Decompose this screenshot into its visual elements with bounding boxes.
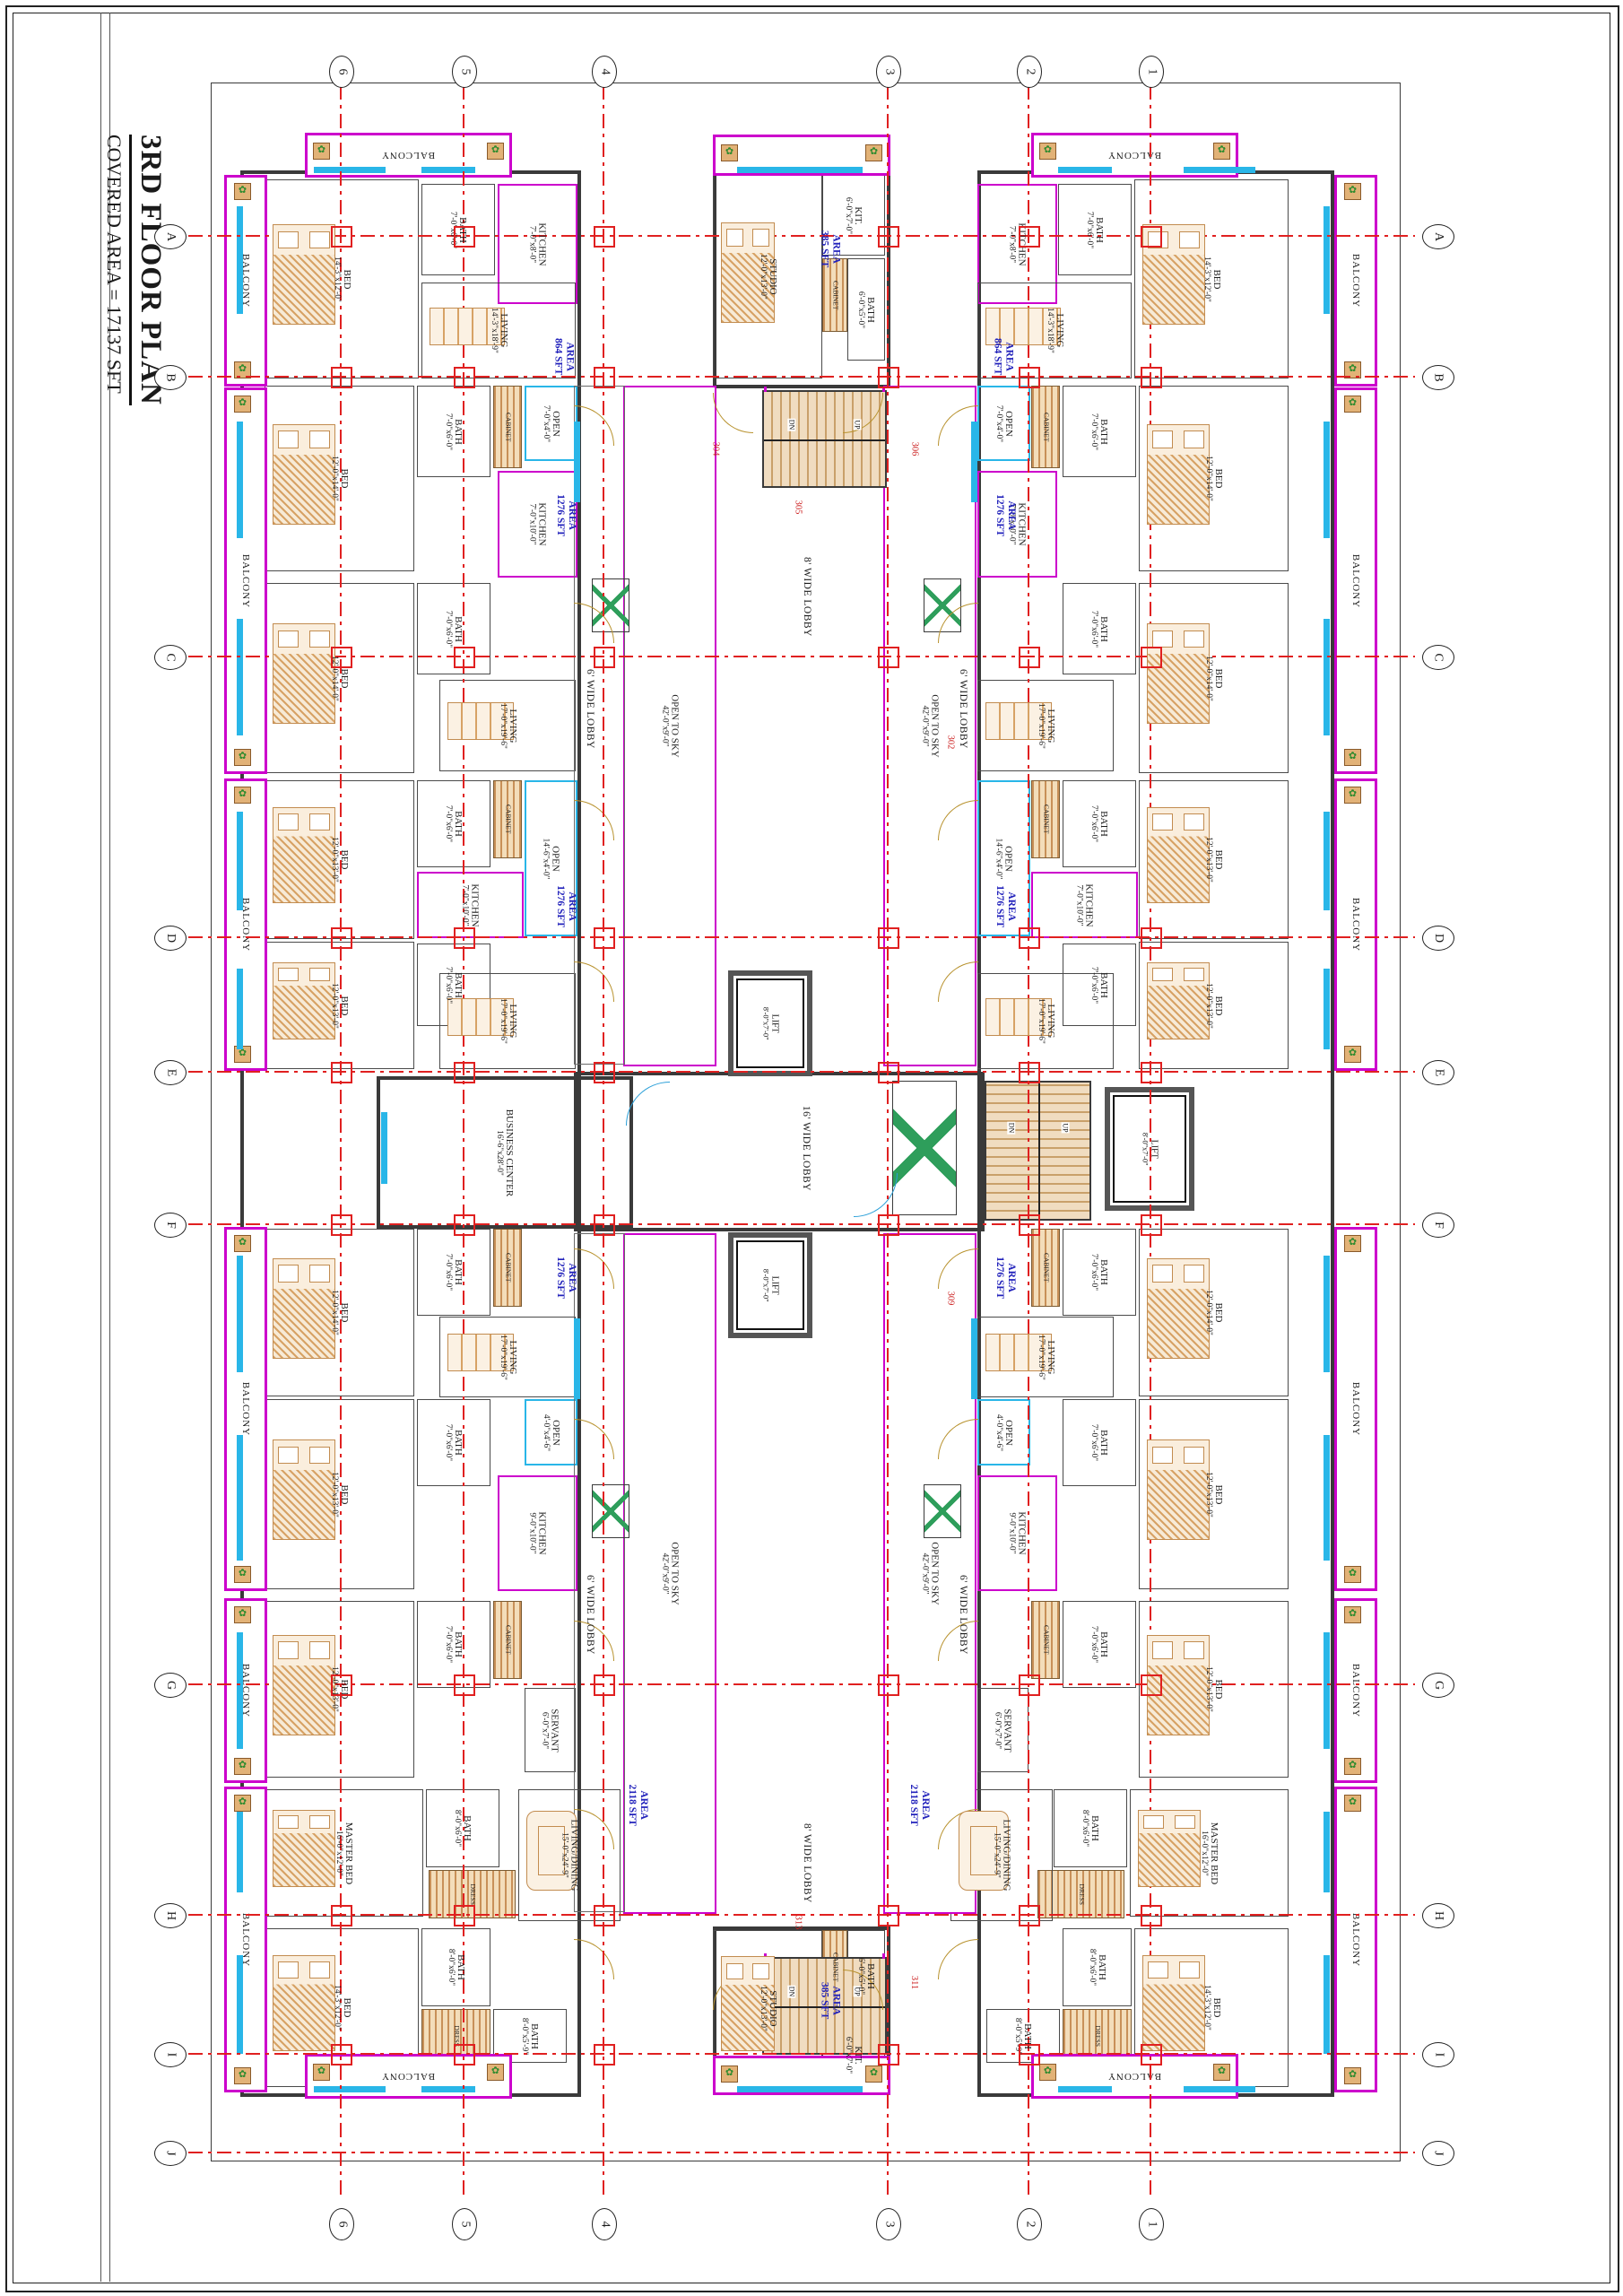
cabinet-room: CABINET — [493, 386, 522, 468]
bed-icon — [273, 224, 335, 325]
room-name: BED — [1213, 1472, 1224, 1518]
room-dims: 17'-0"x19'-6" — [498, 998, 508, 1044]
area-tag-label: AREA385 SFT — [819, 1982, 841, 2019]
lift-label: LIFT8'-0"x7'-0" — [761, 1007, 779, 1040]
room-dims: 12'-0"x13'-0" — [1203, 837, 1213, 883]
unit-number: 313 — [793, 1916, 803, 1930]
room-name: DRESS — [1093, 2025, 1100, 2046]
area-word: AREA — [566, 494, 577, 536]
room-dims: 12'-0"x13'-0" — [329, 837, 339, 883]
balcony: BALCONY✿✿ — [1334, 1787, 1377, 2092]
room-dims: 12'-0"x14'-0" — [329, 656, 339, 701]
room-label: BATH7'-0"x6'-0" — [444, 966, 464, 1003]
room-name: BATH — [529, 2017, 540, 2054]
room-dims: 14'-3"x12'-0" — [332, 257, 342, 302]
room-label: DRESS8'-0"x5'-10" — [468, 1883, 475, 1904]
room-label: LIVING/DINING15'-0"x24'-9" — [560, 1819, 580, 1891]
studio-room: STUDIO12'-0"x13'-0" — [713, 175, 822, 378]
lift-label: LIFT8'-0"x7'-0" — [1141, 1133, 1159, 1166]
bath-room: BATH8'-0"x6'-0" — [426, 1789, 499, 1867]
bed-icon — [1147, 1258, 1210, 1359]
bed-icon — [1147, 1635, 1210, 1735]
room-name: LIVING — [507, 703, 517, 749]
room-label: CABINET — [831, 281, 838, 310]
bed-icon — [273, 1955, 335, 2051]
room-label: KITCHEN7'-0"x8'-0" — [527, 222, 548, 265]
stair-dn-label: DN — [1007, 1121, 1015, 1134]
room-name: CABINET — [504, 413, 511, 442]
balcony: BALCONY✿✿ — [1334, 1227, 1377, 1591]
balcony: BALCONY✿✿ — [224, 778, 267, 1071]
bed-room: BED14'-3"x12'-0" — [1134, 179, 1289, 378]
room-label: MASTER BED16'-0"x12'-0" — [334, 1822, 354, 1883]
room-label: KITCHEN7'-0"x10'-0" — [1074, 883, 1095, 926]
bed-room: BED12'-0"x14'-0" — [1139, 583, 1289, 773]
room-name: BATH — [1098, 1424, 1109, 1461]
room-name: CABINET — [831, 1952, 838, 1982]
bed-icon — [273, 1810, 335, 1887]
window-strip — [1184, 2086, 1255, 2092]
plant-pot-icon: ✿ — [234, 1235, 251, 1252]
room-name: BED — [1213, 656, 1224, 701]
room-label: DRESS8'-0"x5'-10" — [1077, 1883, 1084, 1904]
room-name: BED — [1211, 257, 1221, 302]
area-word: AREA — [830, 1982, 842, 2019]
bath-room: BATH7'-0"x6'-0" — [1063, 583, 1136, 674]
cabinet-room: CABINET — [493, 1229, 522, 1307]
room-label: BED12'-0"x13'-0" — [329, 1472, 350, 1518]
plant-pot-icon: ✿ — [1344, 1046, 1361, 1063]
master-bed-room: MASTER BED16'-0"x12'-0" — [265, 1789, 423, 1917]
cabinet-room: CABINET — [1031, 386, 1060, 468]
kitchen-room: KITCHEN9'-0"x10'-0" — [977, 1475, 1057, 1591]
area-value: 385 SFT — [819, 230, 830, 267]
room-dims: 17'-0"x19'-6" — [1036, 703, 1046, 749]
room-name: BATH — [1094, 211, 1105, 248]
room-label: 6' WIDE LOBBY — [957, 669, 968, 749]
room-name: LIVING — [507, 1335, 517, 1380]
room-dims: 17'-0"x19'-6" — [498, 1335, 508, 1380]
window-strip — [237, 1812, 243, 1892]
room-name: STUDIO — [767, 1986, 777, 2031]
area-tag: AREA2118 SFT — [898, 1794, 940, 1816]
room-dims: 7'-0"x6'-0" — [444, 805, 454, 842]
cabinet-room: CABINET — [1031, 1229, 1060, 1307]
room-dims: 17'-0"x19'-6" — [498, 703, 508, 749]
area-tag: AREA864 SFT — [985, 345, 1021, 368]
room-name: BED — [339, 456, 350, 501]
stair-divider — [1038, 1083, 1041, 1219]
room-label: BED14'-3"x12'-0" — [332, 1985, 352, 2031]
room-label: BED12'-0"x14'-0" — [1203, 1290, 1224, 1335]
room-dims: 7'-0"x8'-0" — [1007, 222, 1017, 265]
room-label: 6' WIDE LOBBY — [584, 1575, 595, 1655]
room-dims: 7'-0"x4'-0" — [994, 404, 1003, 441]
lift-name: LIFT — [769, 1007, 779, 1040]
room-label: CABINET — [831, 1952, 838, 1982]
room-dims: 7'-0"x6'-0" — [444, 1424, 454, 1461]
room-name: LIVING — [498, 308, 508, 353]
area-tag: AREA1276 SFT — [985, 895, 1027, 918]
room-label: BATH7'-0"x6'-0" — [444, 1626, 464, 1663]
room-dims: 12'-0"x14'-0" — [329, 1290, 339, 1335]
window-strip — [1324, 619, 1330, 735]
room-name: LIVING — [1054, 308, 1064, 353]
area-tag: AREA1276 SFT — [985, 1266, 1027, 1289]
bed-icon — [1147, 1439, 1210, 1540]
room-name: BED — [1213, 983, 1224, 1029]
bed-icon — [1138, 1810, 1201, 1887]
room-label: DRESS5'-9"x5'-9" — [452, 2025, 459, 2046]
window-strip — [237, 1955, 243, 2054]
room-dims: 6'-0"x5'-0" — [856, 291, 866, 327]
room-label: LIVING14'-3"x18'-9" — [489, 308, 509, 353]
room-name: CABINET — [1042, 1625, 1049, 1655]
room-name: OPEN — [1003, 838, 1014, 879]
area-tag: AREA2118 SFT — [617, 1794, 658, 1816]
area-word: AREA — [830, 230, 842, 267]
bath-room: BATH7'-0"x6'-0" — [1063, 1399, 1136, 1486]
area-word: AREA — [1005, 494, 1017, 536]
room-name: BED — [339, 837, 350, 883]
room-name: BED — [1213, 1666, 1224, 1712]
room-name: BED — [341, 1985, 352, 2031]
area-value: 1276 SFT — [994, 1257, 1006, 1299]
room-label: BATH7'-0"x6'-0" — [1089, 805, 1110, 842]
room-dims: 42'-0"x9'-0" — [660, 1542, 670, 1605]
balcony-label: BALCONY — [1350, 1382, 1361, 1436]
room-label: BATH7'-0"x6'-0" — [444, 1424, 464, 1461]
room-dims: 6'-0"x5'-0" — [856, 1957, 866, 1994]
area-value: 2118 SFT — [627, 1784, 638, 1825]
servant-room: SERVANT6'-0"x7'-0" — [525, 1688, 576, 1772]
room-dims: 6'-0"x7'-0" — [844, 196, 854, 233]
room-name: OPEN — [551, 838, 561, 879]
room-label: KITCHEN7'-0"x8'-0" — [1007, 222, 1028, 265]
16-wide-lobby-room: 16' WIDE LOBBY — [794, 1092, 818, 1204]
room-label: BED12'-0"x14'-0" — [1203, 656, 1224, 701]
balcony-label: BALCONY — [1350, 553, 1361, 607]
room-label: BATH8'-0"x6'-0" — [446, 1949, 466, 1986]
room-dims: 14'-3"x12'-0" — [1202, 1985, 1211, 2031]
room-label: BED12'-0"x13'-0" — [1203, 1472, 1224, 1518]
balcony-label: BALCONY — [1350, 1664, 1361, 1718]
plant-pot-icon: ✿ — [865, 144, 882, 161]
plant-pot-icon: ✿ — [865, 2066, 882, 2083]
room-dims: 42'-0"x9'-0" — [920, 1542, 930, 1605]
area-tag-label: AREA1276 SFT — [994, 494, 1017, 536]
room-name: OPEN TO SKY — [669, 694, 680, 758]
bed-room: BED12'-0"x14'-0" — [265, 583, 414, 773]
room-name: LIVING — [1045, 1335, 1055, 1380]
bed-icon — [273, 1258, 335, 1359]
bed-room: BED12'-0"x14'-0" — [1139, 386, 1289, 571]
room-name: KIT. — [853, 2036, 864, 2073]
area-tag: AREA864 SFT — [545, 345, 582, 368]
plant-pot-icon: ✿ — [1213, 2064, 1230, 2081]
room-label: CABINET — [504, 804, 511, 834]
room-name: BATH — [1098, 413, 1109, 449]
room-label: BATH7'-0"x6'-0" — [1089, 413, 1110, 449]
plant-pot-icon: ✿ — [1344, 361, 1361, 378]
plant-pot-icon: ✿ — [313, 143, 330, 160]
balcony: BALCONY✿✿ — [224, 387, 267, 774]
plant-pot-icon: ✿ — [1039, 143, 1056, 160]
window-strip — [1324, 1256, 1330, 1372]
area-tag-label: AREA864 SFT — [992, 338, 1014, 375]
bed-icon — [1147, 424, 1210, 525]
bed-icon — [273, 424, 335, 525]
balcony: BALCONY✿✿ — [224, 175, 267, 387]
lift-shaft: LIFT8'-0"x7'-0" — [728, 970, 812, 1076]
room-label: BED14'-3"x12'-0" — [1202, 1985, 1222, 2031]
bed-room: BED12'-0"x13'-0" — [265, 1601, 414, 1778]
room-name: LIVING — [507, 998, 517, 1044]
room-name: OPEN TO SKY — [929, 1542, 940, 1605]
room-dims: 7'-0"x6'-0" — [1089, 1424, 1099, 1461]
plant-pot-icon: ✿ — [234, 1758, 251, 1775]
room-name: CABINET — [1042, 804, 1049, 834]
room-label: CABINET — [504, 1625, 511, 1655]
room-name: BATH — [1097, 1949, 1107, 1986]
plant-pot-icon: ✿ — [234, 361, 251, 378]
window-strip — [237, 206, 243, 314]
window-strip — [421, 2086, 475, 2092]
window-strip — [1324, 1955, 1330, 2054]
room-name: DRESS — [452, 2025, 459, 2046]
room-dims: 8'-0"x6'-0" — [1087, 1949, 1097, 1986]
area-word: AREA — [919, 1784, 931, 1825]
window-strip — [1324, 812, 1330, 910]
room-name: KITCHEN — [537, 1511, 548, 1554]
room-name: BATH — [456, 1949, 466, 1986]
window-strip — [237, 619, 243, 735]
area-tag-label: AREA1276 SFT — [555, 1257, 577, 1299]
room-dims: 12'-0"x13'-0" — [1203, 983, 1213, 1029]
shaft — [892, 1081, 957, 1215]
room-dims: 12'-0"x14'-0" — [1203, 1290, 1213, 1335]
bed-room: BED12'-0"x13'-0" — [265, 1399, 414, 1589]
bed-icon — [1142, 224, 1205, 325]
area-value: 1276 SFT — [994, 494, 1006, 536]
room-label: BATH8'-0"x6'-0" — [1081, 1810, 1101, 1847]
area-word: AREA — [566, 885, 577, 927]
business-center-room: BUSINESS CENTER16'-6"x28'-0" — [377, 1076, 633, 1229]
room-dims: 16'-0"x12'-0" — [1199, 1822, 1209, 1883]
cabinet-room: CABINET — [822, 258, 847, 332]
servant-room: SERVANT6'-0"x7'-0" — [977, 1688, 1028, 1772]
room-label: BATH8'-0"x6'-0" — [453, 1810, 473, 1847]
room-name: BATH — [1098, 1626, 1109, 1663]
room-label: LIVING/DINING15'-0"x24'-9" — [992, 1819, 1012, 1891]
room-label: SERVANT6'-0"x7'-0" — [540, 1709, 560, 1752]
door-swing-icon — [574, 1939, 614, 1979]
room-dims: 7'-0"x6'-0" — [444, 610, 454, 647]
room-label: 8' WIDE LOBBY — [801, 557, 812, 637]
room-name: OPEN — [551, 1413, 561, 1450]
window-strip — [1324, 206, 1330, 314]
room-label: CABINET — [1042, 1253, 1049, 1283]
room-label: OPEN4'-0"x4'-6" — [541, 1413, 561, 1450]
bed-room: BED12'-0"x13'-0" — [1139, 1399, 1289, 1589]
8-wide-lobby-room: 8' WIDE LOBBY — [794, 516, 818, 677]
room-name: CABINET — [504, 1253, 511, 1283]
room-dims: 6'-0"x7'-0" — [993, 1709, 1002, 1752]
room-name: LIVING/DINING — [1001, 1819, 1011, 1891]
room-label: OPEN TO SKY42'-0"x9'-0" — [660, 694, 681, 758]
room-name: LIVING/DINING — [568, 1819, 579, 1891]
balcony-label: BALCONY — [381, 2071, 435, 2082]
room-label: 6' WIDE LOBBY — [957, 1575, 968, 1655]
stair-up-label: UP — [854, 419, 862, 430]
bed-icon — [1147, 962, 1210, 1039]
bath-room: BATH7'-0"x6'-0" — [417, 1229, 490, 1316]
room-label: BATH6'-0"x5'-0" — [856, 1957, 877, 1994]
room-dims: 12'-0"x13'-0" — [1203, 1472, 1213, 1518]
room-dims: 42'-0"x9'-0" — [920, 694, 930, 758]
window-strip — [237, 1256, 243, 1372]
room-dims: 8'-0"x6'-0" — [446, 1949, 456, 1986]
window-strip — [1058, 2086, 1112, 2092]
balcony: BALCONY✿✿ — [224, 1227, 267, 1591]
bed-room: BED12'-0"x13'-0" — [265, 942, 414, 1069]
window-strip — [971, 1318, 977, 1399]
plant-pot-icon: ✿ — [234, 1566, 251, 1583]
lift-shaft: LIFT8'-0"x7'-0" — [1105, 1087, 1194, 1211]
room-label: LIVING17'-0"x19'-6" — [498, 1335, 518, 1380]
area-word: AREA — [638, 1784, 649, 1825]
room-label: CABINET — [1042, 804, 1049, 834]
open-room: OPEN7'-0"x4'-0" — [977, 386, 1030, 461]
room-label: BATH7'-0"x6'-0" — [1089, 1424, 1110, 1461]
window-strip — [1324, 1435, 1330, 1561]
room-dims: 7'-0"x6'-0" — [1089, 966, 1099, 1003]
area-tag-label: AREA2118 SFT — [627, 1784, 649, 1825]
lift-name: LIFT — [1149, 1133, 1159, 1166]
room-label: LIVING17'-0"x19'-6" — [1036, 1335, 1056, 1380]
room-label: OPEN TO SKY42'-0"x9'-0" — [920, 1542, 941, 1605]
window-strip — [1184, 167, 1255, 173]
6-wide-lobby-room: 6' WIDE LOBBY — [579, 619, 599, 798]
room-name: CABINET — [504, 804, 511, 834]
room-label: BED12'-0"x14'-0" — [1203, 456, 1224, 501]
room-name: BATH — [453, 1626, 464, 1663]
plant-pot-icon: ✿ — [1039, 2064, 1056, 2081]
room-name: OPEN — [551, 404, 561, 441]
balcony: BALCONY✿✿ — [1334, 175, 1377, 387]
room-label: BED12'-0"x13'-0" — [1203, 837, 1224, 883]
bed-room: BED12'-0"x13'-0" — [1139, 780, 1289, 939]
area-word: AREA — [564, 338, 576, 375]
plant-pot-icon: ✿ — [1344, 396, 1361, 413]
master-bed-room: MASTER BED16'-0"x12'-0" — [1130, 1789, 1289, 1917]
area-tag-label: AREA1276 SFT — [555, 494, 577, 536]
shaft — [592, 1484, 629, 1538]
room-name: BATH — [453, 966, 464, 1003]
room-label: BED12'-0"x13'-0" — [1203, 983, 1224, 1029]
room-dims: 12'-0"x13'-0" — [758, 254, 768, 300]
plant-pot-icon: ✿ — [1344, 749, 1361, 766]
area-tag-label: AREA864 SFT — [552, 338, 575, 375]
plant-pot-icon: ✿ — [1344, 2067, 1361, 2084]
area-value: 2118 SFT — [908, 1784, 920, 1825]
plant-pot-icon: ✿ — [313, 2064, 330, 2081]
room-dims: 6'-0"x7'-0" — [844, 2036, 854, 2073]
room-label: BED14'-3"x12'-0" — [332, 257, 352, 302]
lift-label: LIFT8'-0"x7'-0" — [761, 1269, 779, 1302]
room-dims: 16'-6"x28'-0" — [495, 1109, 505, 1196]
room-label: BATH8'-0"x6'-0" — [1087, 1949, 1107, 1986]
window-strip — [237, 969, 243, 1049]
room-name: BED — [339, 1290, 350, 1335]
room-dims: 14'-3"x18'-9" — [489, 308, 499, 353]
room-name: BED — [1211, 1985, 1221, 2031]
room-label: STUDIO12'-0"x13'-0" — [758, 1986, 778, 2031]
area-word: AREA — [566, 1257, 577, 1299]
bed-icon — [273, 623, 335, 724]
open-room: OPEN7'-0"x4'-0" — [525, 386, 577, 461]
room-name: BATH — [453, 805, 464, 842]
bed-icon — [1147, 807, 1210, 903]
plant-pot-icon: ✿ — [1344, 1235, 1361, 1252]
room-dims: 7'-0"x6'-0" — [444, 1254, 454, 1291]
area-tag: AREA385 SFT — [811, 1989, 848, 2012]
room-label: CABINET — [1042, 1625, 1049, 1655]
plant-pot-icon: ✿ — [234, 396, 251, 413]
room-dims: 15'-0"x24'-9" — [560, 1819, 569, 1891]
bed-icon — [1147, 623, 1210, 724]
area-tag-label: AREA385 SFT — [819, 230, 841, 267]
room-dims: 12'-0"x13'-0" — [329, 1666, 339, 1712]
room-label: BATH7'-0"x6'-0" — [1089, 610, 1110, 647]
room-label: BUSINESS CENTER16'-6"x28'-0" — [495, 1109, 516, 1196]
kitchen-room: KITCHEN7'-0"x10'-0" — [417, 872, 524, 938]
room-dims: 16'-0"x12'-0" — [334, 1822, 343, 1883]
area-tag: AREA1276 SFT — [545, 504, 587, 526]
area-tag-label: AREA1276 SFT — [994, 885, 1017, 927]
room-dims: 12'-0"x14'-0" — [1203, 656, 1213, 701]
bed-room: BED12'-0"x13'-0" — [1139, 1601, 1289, 1778]
stair-dn-label: DN — [788, 1985, 796, 1997]
room-dims: 14'-3"x12'-0" — [1202, 257, 1211, 302]
kitchen-room: KITCHEN9'-0"x10'-0" — [498, 1475, 577, 1591]
balcony-label: BALCONY — [1107, 150, 1161, 161]
bed-icon — [273, 962, 335, 1039]
room-label: BATH6'-0"x5'-0" — [856, 291, 877, 327]
room-label: BED12'-0"x13'-0" — [329, 1666, 350, 1712]
area-tag: AREA1276 SFT — [545, 895, 587, 918]
room-name: 6' WIDE LOBBY — [584, 669, 595, 749]
room-name: BED — [339, 1472, 350, 1518]
room-name: 8' WIDE LOBBY — [801, 557, 812, 637]
stair-up-label: UP — [1062, 1122, 1070, 1133]
room-dims: 7'-0"x6'-0" — [1089, 1254, 1099, 1291]
unit-number: 304 — [710, 442, 720, 457]
window-strip — [737, 167, 863, 173]
open-room: OPEN4'-0"x4'-6" — [525, 1399, 577, 1465]
room-dims: 42'-0"x9'-0" — [660, 694, 670, 758]
bed-room: BED12'-0"x14'-0" — [265, 1229, 414, 1396]
room-name: BATH — [453, 1254, 464, 1291]
room-label: KITCHEN7'-0"x10'-0" — [460, 883, 481, 926]
8-wide-lobby-room: 8' WIDE LOBBY — [794, 1805, 818, 1921]
room-name: MASTER BED — [343, 1822, 354, 1883]
room-name: STUDIO — [767, 254, 777, 300]
room-dims: 7'-0"x10'-0" — [1074, 883, 1084, 926]
lift-dims: 8'-0"x7'-0" — [1141, 1133, 1149, 1166]
room-name: KITCHEN — [1017, 222, 1028, 265]
room-label: LIVING17'-0"x19'-6" — [498, 703, 518, 749]
